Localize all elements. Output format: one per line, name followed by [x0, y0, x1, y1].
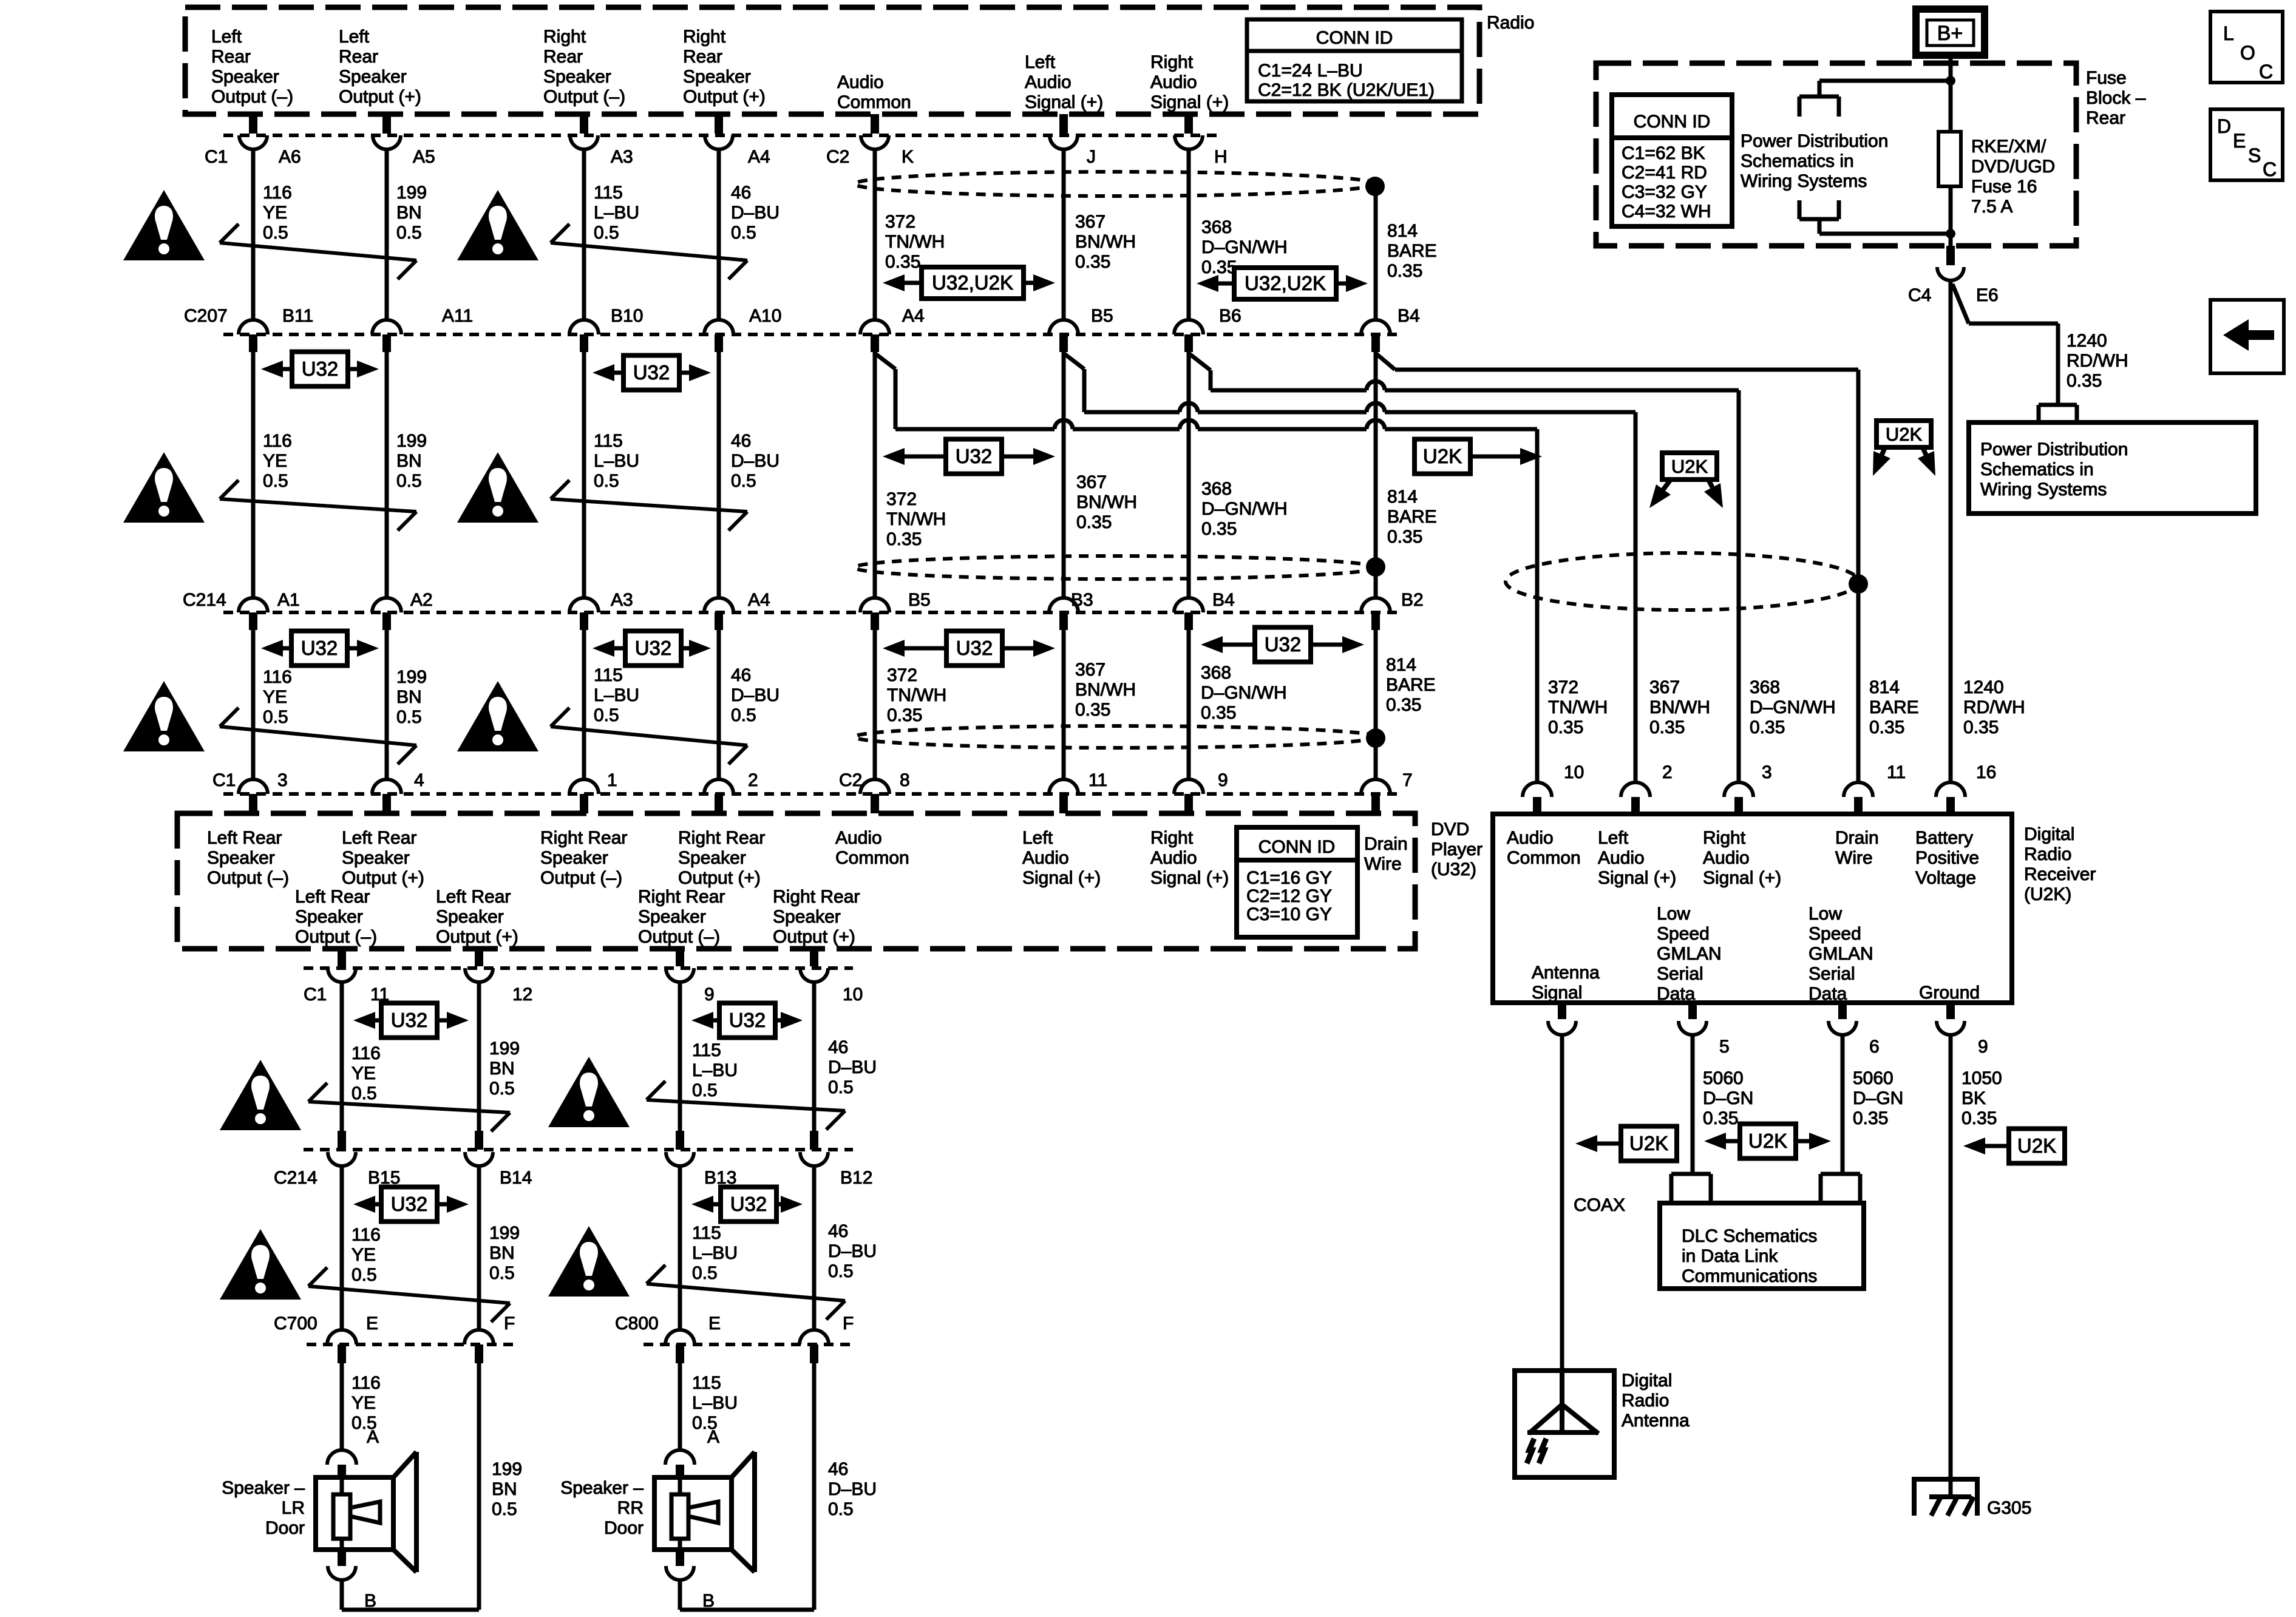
svg-text:1050: 1050: [1961, 1068, 2002, 1088]
svg-text:C800: C800: [615, 1314, 659, 1334]
svg-text:115: 115: [594, 431, 623, 451]
svg-text:Antenna: Antenna: [1622, 1411, 1690, 1431]
svg-text:8: 8: [900, 770, 910, 790]
svg-text:Speed: Speed: [1657, 924, 1710, 944]
svg-text:A5: A5: [413, 147, 435, 167]
svg-text:Right: Right: [543, 27, 586, 47]
svg-text:Audio: Audio: [1507, 828, 1554, 848]
svg-text:Speaker: Speaker: [295, 907, 363, 927]
svg-text:0.5: 0.5: [396, 471, 422, 491]
svg-text:C700: C700: [274, 1314, 318, 1334]
svg-text:3: 3: [1762, 762, 1772, 782]
svg-text:Output (+): Output (+): [773, 927, 855, 947]
svg-text:814: 814: [1387, 487, 1418, 507]
svg-text:TN/WH: TN/WH: [887, 685, 946, 705]
svg-text:in Data Link: in Data Link: [1682, 1246, 1778, 1266]
svg-text:GMLAN: GMLAN: [1809, 944, 1873, 964]
svg-text:Schematics in: Schematics in: [1741, 151, 1854, 171]
svg-text:Common: Common: [1507, 848, 1581, 868]
svg-text:Door: Door: [604, 1518, 644, 1538]
svg-text:116: 116: [263, 431, 292, 451]
svg-text:BARE: BARE: [1386, 675, 1436, 695]
svg-text:0.5: 0.5: [492, 1499, 517, 1519]
svg-text:D–GN/WH: D–GN/WH: [1201, 237, 1288, 257]
svg-text:U32,U2K: U32,U2K: [932, 271, 1013, 294]
svg-text:Right: Right: [1703, 828, 1746, 848]
svg-text:Rear: Rear: [339, 47, 378, 67]
svg-text:0.5: 0.5: [263, 223, 288, 243]
svg-text:U32: U32: [391, 1193, 428, 1215]
svg-text:C4: C4: [1908, 285, 1931, 305]
svg-text:Output (–): Output (–): [207, 868, 289, 888]
svg-text:0.35: 0.35: [1075, 700, 1110, 720]
svg-text:BN/WH: BN/WH: [1076, 492, 1137, 512]
svg-text:Output (+): Output (+): [339, 87, 421, 107]
svg-text:BN/WH: BN/WH: [1075, 680, 1136, 700]
svg-text:Output (–): Output (–): [211, 87, 293, 107]
svg-text:Digital: Digital: [1622, 1371, 1672, 1391]
svg-text:BN/WH: BN/WH: [1075, 232, 1136, 252]
svg-text:D–GN: D–GN: [1853, 1088, 1903, 1108]
svg-text:Drain: Drain: [1835, 828, 1879, 848]
svg-text:A6: A6: [279, 147, 301, 167]
svg-text:A10: A10: [749, 306, 781, 326]
svg-text:Audio: Audio: [1022, 848, 1069, 868]
svg-text:E: E: [366, 1314, 378, 1334]
svg-text:Audio: Audio: [1703, 848, 1750, 868]
svg-text:C3=32 GY: C3=32 GY: [1622, 182, 1707, 202]
svg-text:0.5: 0.5: [731, 471, 756, 491]
svg-text:Speaker –: Speaker –: [560, 1478, 644, 1498]
svg-text:1240: 1240: [1963, 677, 2004, 697]
svg-text:Speaker: Speaker: [342, 848, 410, 868]
svg-text:0.5: 0.5: [396, 223, 422, 243]
svg-text:B2: B2: [1401, 590, 1424, 610]
svg-text:E6: E6: [1976, 285, 1999, 305]
svg-text:0.5: 0.5: [828, 1499, 854, 1519]
svg-text:Speaker –: Speaker –: [222, 1478, 305, 1498]
svg-text:0.5: 0.5: [396, 707, 422, 727]
svg-text:9: 9: [1978, 1037, 1988, 1057]
svg-text:12: 12: [512, 985, 532, 1005]
svg-text:Audio: Audio: [1025, 72, 1072, 92]
svg-text:Serial: Serial: [1809, 964, 1855, 984]
svg-text:Voltage: Voltage: [1915, 868, 1976, 888]
svg-text:Output (+): Output (+): [342, 868, 424, 888]
svg-text:0.35: 0.35: [1750, 717, 1785, 737]
svg-text:B4: B4: [1212, 590, 1235, 610]
svg-text:Right: Right: [1150, 52, 1194, 72]
svg-text:0.35: 0.35: [2067, 371, 2102, 391]
svg-text:0.5: 0.5: [731, 705, 756, 725]
svg-text:367: 367: [1076, 472, 1107, 492]
svg-text:B5: B5: [908, 590, 931, 610]
svg-text:BN/WH: BN/WH: [1649, 697, 1710, 717]
svg-text:U32: U32: [301, 637, 338, 659]
svg-text:U32: U32: [1265, 633, 1302, 656]
svg-text:U2K: U2K: [2017, 1134, 2056, 1157]
svg-text:1: 1: [607, 770, 617, 790]
svg-text:Speed: Speed: [1809, 924, 1861, 944]
svg-text:D–BU: D–BU: [828, 1057, 877, 1077]
svg-text:Data: Data: [1809, 984, 1847, 1004]
svg-text:Right: Right: [1150, 828, 1194, 848]
svg-text:Signal (+): Signal (+): [1150, 868, 1229, 888]
svg-text:814: 814: [1386, 655, 1416, 675]
svg-text:B4: B4: [1398, 306, 1420, 326]
svg-text:E: E: [2233, 130, 2246, 152]
svg-text:C2: C2: [826, 147, 849, 167]
svg-text:Power Distribution: Power Distribution: [1741, 131, 1888, 151]
svg-text:U32: U32: [391, 1009, 428, 1031]
svg-text:0.35: 0.35: [1387, 527, 1422, 547]
svg-text:0.5: 0.5: [263, 707, 288, 727]
svg-text:U32: U32: [956, 637, 993, 659]
svg-text:B12: B12: [840, 1168, 872, 1188]
svg-text:D–BU: D–BU: [731, 685, 779, 705]
svg-text:A3: A3: [611, 590, 633, 610]
svg-text:116: 116: [263, 667, 292, 687]
svg-text:Radio: Radio: [1622, 1391, 1669, 1411]
svg-text:368: 368: [1201, 663, 1231, 683]
svg-text:372: 372: [886, 489, 917, 509]
svg-text:Left Rear: Left Rear: [436, 887, 511, 907]
svg-text:0.35: 0.35: [1386, 695, 1421, 715]
svg-text:Audio: Audio: [1598, 848, 1645, 868]
svg-text:TN/WH: TN/WH: [886, 509, 946, 529]
svg-text:L–BU: L–BU: [594, 451, 639, 471]
svg-text:A: A: [707, 1427, 719, 1447]
svg-text:YE: YE: [263, 451, 287, 471]
svg-text:199: 199: [492, 1459, 522, 1479]
svg-text:Ground: Ground: [1919, 983, 1980, 1003]
svg-text:U2K: U2K: [1748, 1130, 1787, 1152]
svg-text:YE: YE: [352, 1245, 376, 1265]
svg-text:TN/WH: TN/WH: [885, 232, 945, 252]
svg-text:0.5: 0.5: [594, 471, 619, 491]
svg-text:814: 814: [1387, 221, 1418, 241]
svg-text:U32: U32: [635, 637, 672, 659]
svg-text:BARE: BARE: [1869, 697, 1919, 717]
svg-text:199: 199: [396, 667, 427, 687]
svg-text:Common: Common: [835, 848, 909, 868]
svg-text:L–BU: L–BU: [692, 1393, 738, 1413]
svg-text:367: 367: [1075, 660, 1106, 680]
svg-text:H: H: [1214, 147, 1228, 167]
svg-text:Wire: Wire: [1835, 848, 1873, 868]
svg-text:Drain: Drain: [1364, 834, 1408, 854]
svg-text:A4: A4: [902, 306, 925, 326]
svg-text:C3=10 GY: C3=10 GY: [1246, 904, 1332, 924]
svg-text:BN: BN: [396, 203, 422, 223]
svg-text:368: 368: [1750, 677, 1780, 697]
svg-text:Left Rear: Left Rear: [295, 887, 370, 907]
svg-text:Signal (+): Signal (+): [1150, 92, 1229, 112]
svg-text:0.35: 0.35: [1649, 717, 1685, 737]
svg-text:U32: U32: [633, 361, 670, 384]
svg-text:115: 115: [692, 1373, 721, 1393]
svg-text:0.35: 0.35: [886, 529, 922, 549]
svg-text:Output (–): Output (–): [540, 868, 622, 888]
svg-text:A11: A11: [442, 306, 473, 326]
svg-text:Output (–): Output (–): [543, 87, 625, 107]
svg-text:L–BU: L–BU: [594, 685, 639, 705]
svg-text:CONN ID: CONN ID: [1316, 28, 1393, 48]
svg-text:CONN ID: CONN ID: [1634, 112, 1711, 132]
svg-text:814: 814: [1869, 677, 1900, 697]
svg-text:0.35: 0.35: [1076, 512, 1112, 532]
svg-text:367: 367: [1649, 677, 1680, 697]
svg-text:BN: BN: [492, 1479, 517, 1499]
svg-text:Fuse 16: Fuse 16: [1971, 177, 2037, 197]
svg-text:Audio: Audio: [1150, 848, 1197, 868]
svg-text:(U2K): (U2K): [2024, 884, 2071, 904]
svg-text:Data: Data: [1657, 984, 1696, 1004]
svg-text:A2: A2: [410, 590, 433, 610]
svg-text:Speaker: Speaker: [211, 67, 279, 87]
svg-text:D–BU: D–BU: [828, 1479, 877, 1499]
svg-text:GMLAN: GMLAN: [1657, 944, 1722, 964]
svg-text:L–BU: L–BU: [692, 1060, 738, 1080]
svg-text:Player: Player: [1431, 839, 1483, 859]
svg-text:Wiring Systems: Wiring Systems: [1741, 171, 1867, 191]
svg-text:11: 11: [1887, 762, 1906, 782]
svg-text:BK: BK: [1961, 1088, 1986, 1108]
svg-text:C4=32 WH: C4=32 WH: [1622, 202, 1711, 222]
svg-text:Wire: Wire: [1364, 854, 1402, 874]
svg-text:9: 9: [1218, 770, 1228, 790]
svg-text:10: 10: [1564, 762, 1584, 782]
svg-text:Battery: Battery: [1915, 828, 1973, 848]
svg-text:LR: LR: [282, 1498, 305, 1518]
svg-text:D–GN: D–GN: [1703, 1088, 1753, 1108]
svg-text:F: F: [504, 1314, 515, 1334]
svg-text:368: 368: [1201, 217, 1232, 237]
svg-text:C1=62 BK: C1=62 BK: [1622, 143, 1705, 163]
svg-text:RKE/XM/: RKE/XM/: [1971, 137, 2046, 157]
svg-text:L–BU: L–BU: [594, 203, 639, 223]
svg-text:Output (+): Output (+): [436, 927, 518, 947]
svg-text:46: 46: [828, 1037, 848, 1057]
svg-text:0.35: 0.35: [1963, 717, 1999, 737]
svg-text:C1=16 GY: C1=16 GY: [1246, 868, 1332, 888]
svg-text:BN: BN: [396, 687, 422, 707]
svg-text:Power Distribution: Power Distribution: [1980, 439, 2128, 459]
svg-text:B11: B11: [282, 306, 313, 326]
svg-text:2: 2: [1662, 762, 1673, 782]
svg-text:Right: Right: [683, 27, 726, 47]
svg-text:6: 6: [1869, 1037, 1880, 1057]
svg-text:D–BU: D–BU: [731, 203, 779, 223]
svg-text:RD/WH: RD/WH: [1963, 697, 2025, 717]
svg-text:YE: YE: [263, 203, 287, 223]
svg-text:F: F: [843, 1314, 854, 1334]
svg-text:0.35: 0.35: [1853, 1108, 1888, 1128]
svg-text:Signal (+): Signal (+): [1022, 868, 1101, 888]
svg-text:0.35: 0.35: [1201, 257, 1237, 277]
svg-text:372: 372: [887, 665, 917, 685]
svg-text:Rear: Rear: [683, 47, 722, 67]
svg-text:0.5: 0.5: [489, 1263, 515, 1283]
svg-text:YE: YE: [263, 687, 287, 707]
svg-text:B: B: [702, 1591, 715, 1611]
svg-text:116: 116: [352, 1225, 381, 1245]
svg-text:BARE: BARE: [1387, 507, 1437, 527]
svg-text:A3: A3: [611, 147, 633, 167]
svg-text:5060: 5060: [1703, 1068, 1744, 1088]
svg-text:A: A: [367, 1427, 379, 1447]
svg-text:Speaker: Speaker: [678, 848, 746, 868]
svg-text:1240: 1240: [2067, 331, 2107, 351]
svg-text:Rear: Rear: [211, 47, 251, 67]
svg-text:368: 368: [1201, 479, 1232, 499]
svg-text:B: B: [364, 1591, 376, 1611]
svg-text:Rear: Rear: [2086, 108, 2125, 128]
svg-text:J: J: [1087, 147, 1096, 167]
svg-text:U32: U32: [729, 1009, 766, 1031]
svg-text:DVD/UGD: DVD/UGD: [1971, 157, 2055, 177]
svg-text:16: 16: [1976, 762, 1996, 782]
svg-text:D: D: [2217, 115, 2231, 137]
svg-text:0.35: 0.35: [887, 705, 922, 725]
svg-text:Positive: Positive: [1915, 848, 1979, 868]
svg-text:D–BU: D–BU: [828, 1241, 877, 1261]
svg-text:0.5: 0.5: [828, 1261, 854, 1281]
svg-text:B14: B14: [500, 1168, 532, 1188]
svg-text:115: 115: [692, 1040, 721, 1060]
svg-text:Schematics in: Schematics in: [1980, 459, 2094, 480]
svg-text:46: 46: [731, 183, 751, 203]
svg-text:0.5: 0.5: [692, 1263, 718, 1283]
svg-text:RD/WH: RD/WH: [2067, 351, 2128, 371]
svg-text:Signal (+): Signal (+): [1025, 92, 1103, 112]
svg-text:372: 372: [1548, 677, 1578, 697]
svg-text:2: 2: [748, 770, 758, 790]
svg-text:115: 115: [594, 183, 623, 203]
svg-text:Antenna: Antenna: [1532, 963, 1600, 983]
svg-text:Radio: Radio: [1487, 13, 1534, 33]
svg-text:Output (–): Output (–): [295, 927, 377, 947]
svg-text:116: 116: [352, 1043, 381, 1063]
svg-text:199: 199: [396, 431, 427, 451]
svg-text:TN/WH: TN/WH: [1548, 697, 1608, 717]
svg-text:CONN ID: CONN ID: [1258, 837, 1336, 857]
svg-text:L: L: [2223, 22, 2234, 44]
svg-text:U32: U32: [730, 1193, 767, 1215]
svg-text:Signal: Signal: [1532, 983, 1582, 1003]
svg-text:0.35: 0.35: [1703, 1108, 1738, 1128]
svg-text:5: 5: [1719, 1037, 1730, 1057]
svg-text:O: O: [2240, 42, 2255, 64]
svg-text:0.35: 0.35: [1387, 261, 1422, 281]
svg-text:Digital: Digital: [2024, 824, 2074, 844]
svg-text:D–GN/WH: D–GN/WH: [1201, 499, 1288, 519]
svg-text:7.5 A: 7.5 A: [1971, 197, 2012, 217]
svg-text:A4: A4: [748, 147, 770, 167]
svg-text:U32: U32: [956, 445, 993, 467]
svg-text:Audio: Audio: [835, 828, 882, 848]
svg-text:Left: Left: [1022, 828, 1053, 848]
svg-text:B+: B+: [1937, 22, 1963, 45]
svg-text:DVD: DVD: [1431, 819, 1469, 839]
svg-text:S: S: [2248, 144, 2261, 166]
svg-text:46: 46: [828, 1459, 848, 1479]
svg-text:Right Rear: Right Rear: [678, 828, 765, 848]
svg-text:5060: 5060: [1853, 1068, 1894, 1088]
svg-text:COAX: COAX: [1574, 1195, 1625, 1215]
svg-text:199: 199: [489, 1223, 520, 1243]
svg-text:Left: Left: [1025, 52, 1056, 72]
svg-text:199: 199: [489, 1039, 520, 1059]
svg-text:0.35: 0.35: [885, 252, 920, 272]
svg-text:B3: B3: [1071, 590, 1093, 610]
svg-text:Low: Low: [1657, 904, 1690, 924]
svg-text:Left Rear: Left Rear: [342, 828, 416, 848]
svg-text:Signal (+): Signal (+): [1703, 868, 1781, 888]
svg-text:0.5: 0.5: [594, 705, 619, 725]
svg-text:C: C: [2259, 61, 2273, 83]
svg-text:D–BU: D–BU: [731, 451, 779, 471]
svg-text:B5: B5: [1091, 306, 1113, 326]
svg-text:Rear: Rear: [543, 47, 583, 67]
svg-text:Speaker: Speaker: [543, 67, 611, 87]
svg-text:RR: RR: [617, 1498, 644, 1518]
svg-text:Low: Low: [1809, 904, 1842, 924]
svg-text:0.35: 0.35: [1961, 1108, 1997, 1128]
svg-text:Left: Left: [1598, 828, 1629, 848]
svg-text:0.5: 0.5: [692, 1080, 718, 1100]
svg-text:3: 3: [277, 770, 288, 790]
svg-text:Right Rear: Right Rear: [540, 828, 627, 848]
svg-text:E: E: [708, 1314, 721, 1334]
svg-text:Speaker: Speaker: [540, 848, 608, 868]
svg-text:(U32): (U32): [1431, 859, 1476, 880]
svg-text:U32,U2K: U32,U2K: [1245, 272, 1326, 294]
svg-text:Speaker: Speaker: [773, 907, 841, 927]
svg-text:D–GN/WH: D–GN/WH: [1750, 697, 1836, 717]
svg-text:C1: C1: [304, 985, 327, 1005]
svg-text:116: 116: [352, 1373, 381, 1393]
svg-text:Speaker: Speaker: [339, 67, 407, 87]
svg-text:DLC Schematics: DLC Schematics: [1682, 1226, 1817, 1246]
svg-text:Radio: Radio: [2024, 844, 2071, 864]
svg-text:Wiring Systems: Wiring Systems: [1980, 480, 2107, 500]
svg-text:199: 199: [396, 183, 427, 203]
svg-text:Audio: Audio: [1150, 72, 1197, 92]
svg-text:K: K: [902, 147, 914, 167]
svg-text:Signal (+): Signal (+): [1598, 868, 1676, 888]
svg-text:YE: YE: [352, 1393, 376, 1413]
svg-text:U2K: U2K: [1629, 1132, 1668, 1154]
svg-text:0.5: 0.5: [352, 1265, 377, 1285]
svg-text:D–GN/WH: D–GN/WH: [1201, 683, 1287, 703]
svg-text:Speaker: Speaker: [638, 907, 706, 927]
svg-text:A4: A4: [748, 590, 770, 610]
svg-text:C1: C1: [205, 147, 228, 167]
svg-text:0.5: 0.5: [828, 1077, 854, 1097]
svg-text:Output (+): Output (+): [683, 87, 766, 107]
svg-text:0.5: 0.5: [489, 1079, 515, 1099]
svg-text:4: 4: [414, 770, 424, 790]
svg-text:BN: BN: [489, 1243, 515, 1263]
svg-text:B10: B10: [611, 306, 643, 326]
svg-text:C2=41 RD: C2=41 RD: [1622, 163, 1707, 183]
svg-text:Speaker: Speaker: [207, 848, 275, 868]
svg-text:Left Rear: Left Rear: [207, 828, 282, 848]
svg-text:YE: YE: [352, 1063, 376, 1083]
svg-text:C: C: [2263, 158, 2277, 180]
svg-text:C207: C207: [184, 306, 228, 326]
